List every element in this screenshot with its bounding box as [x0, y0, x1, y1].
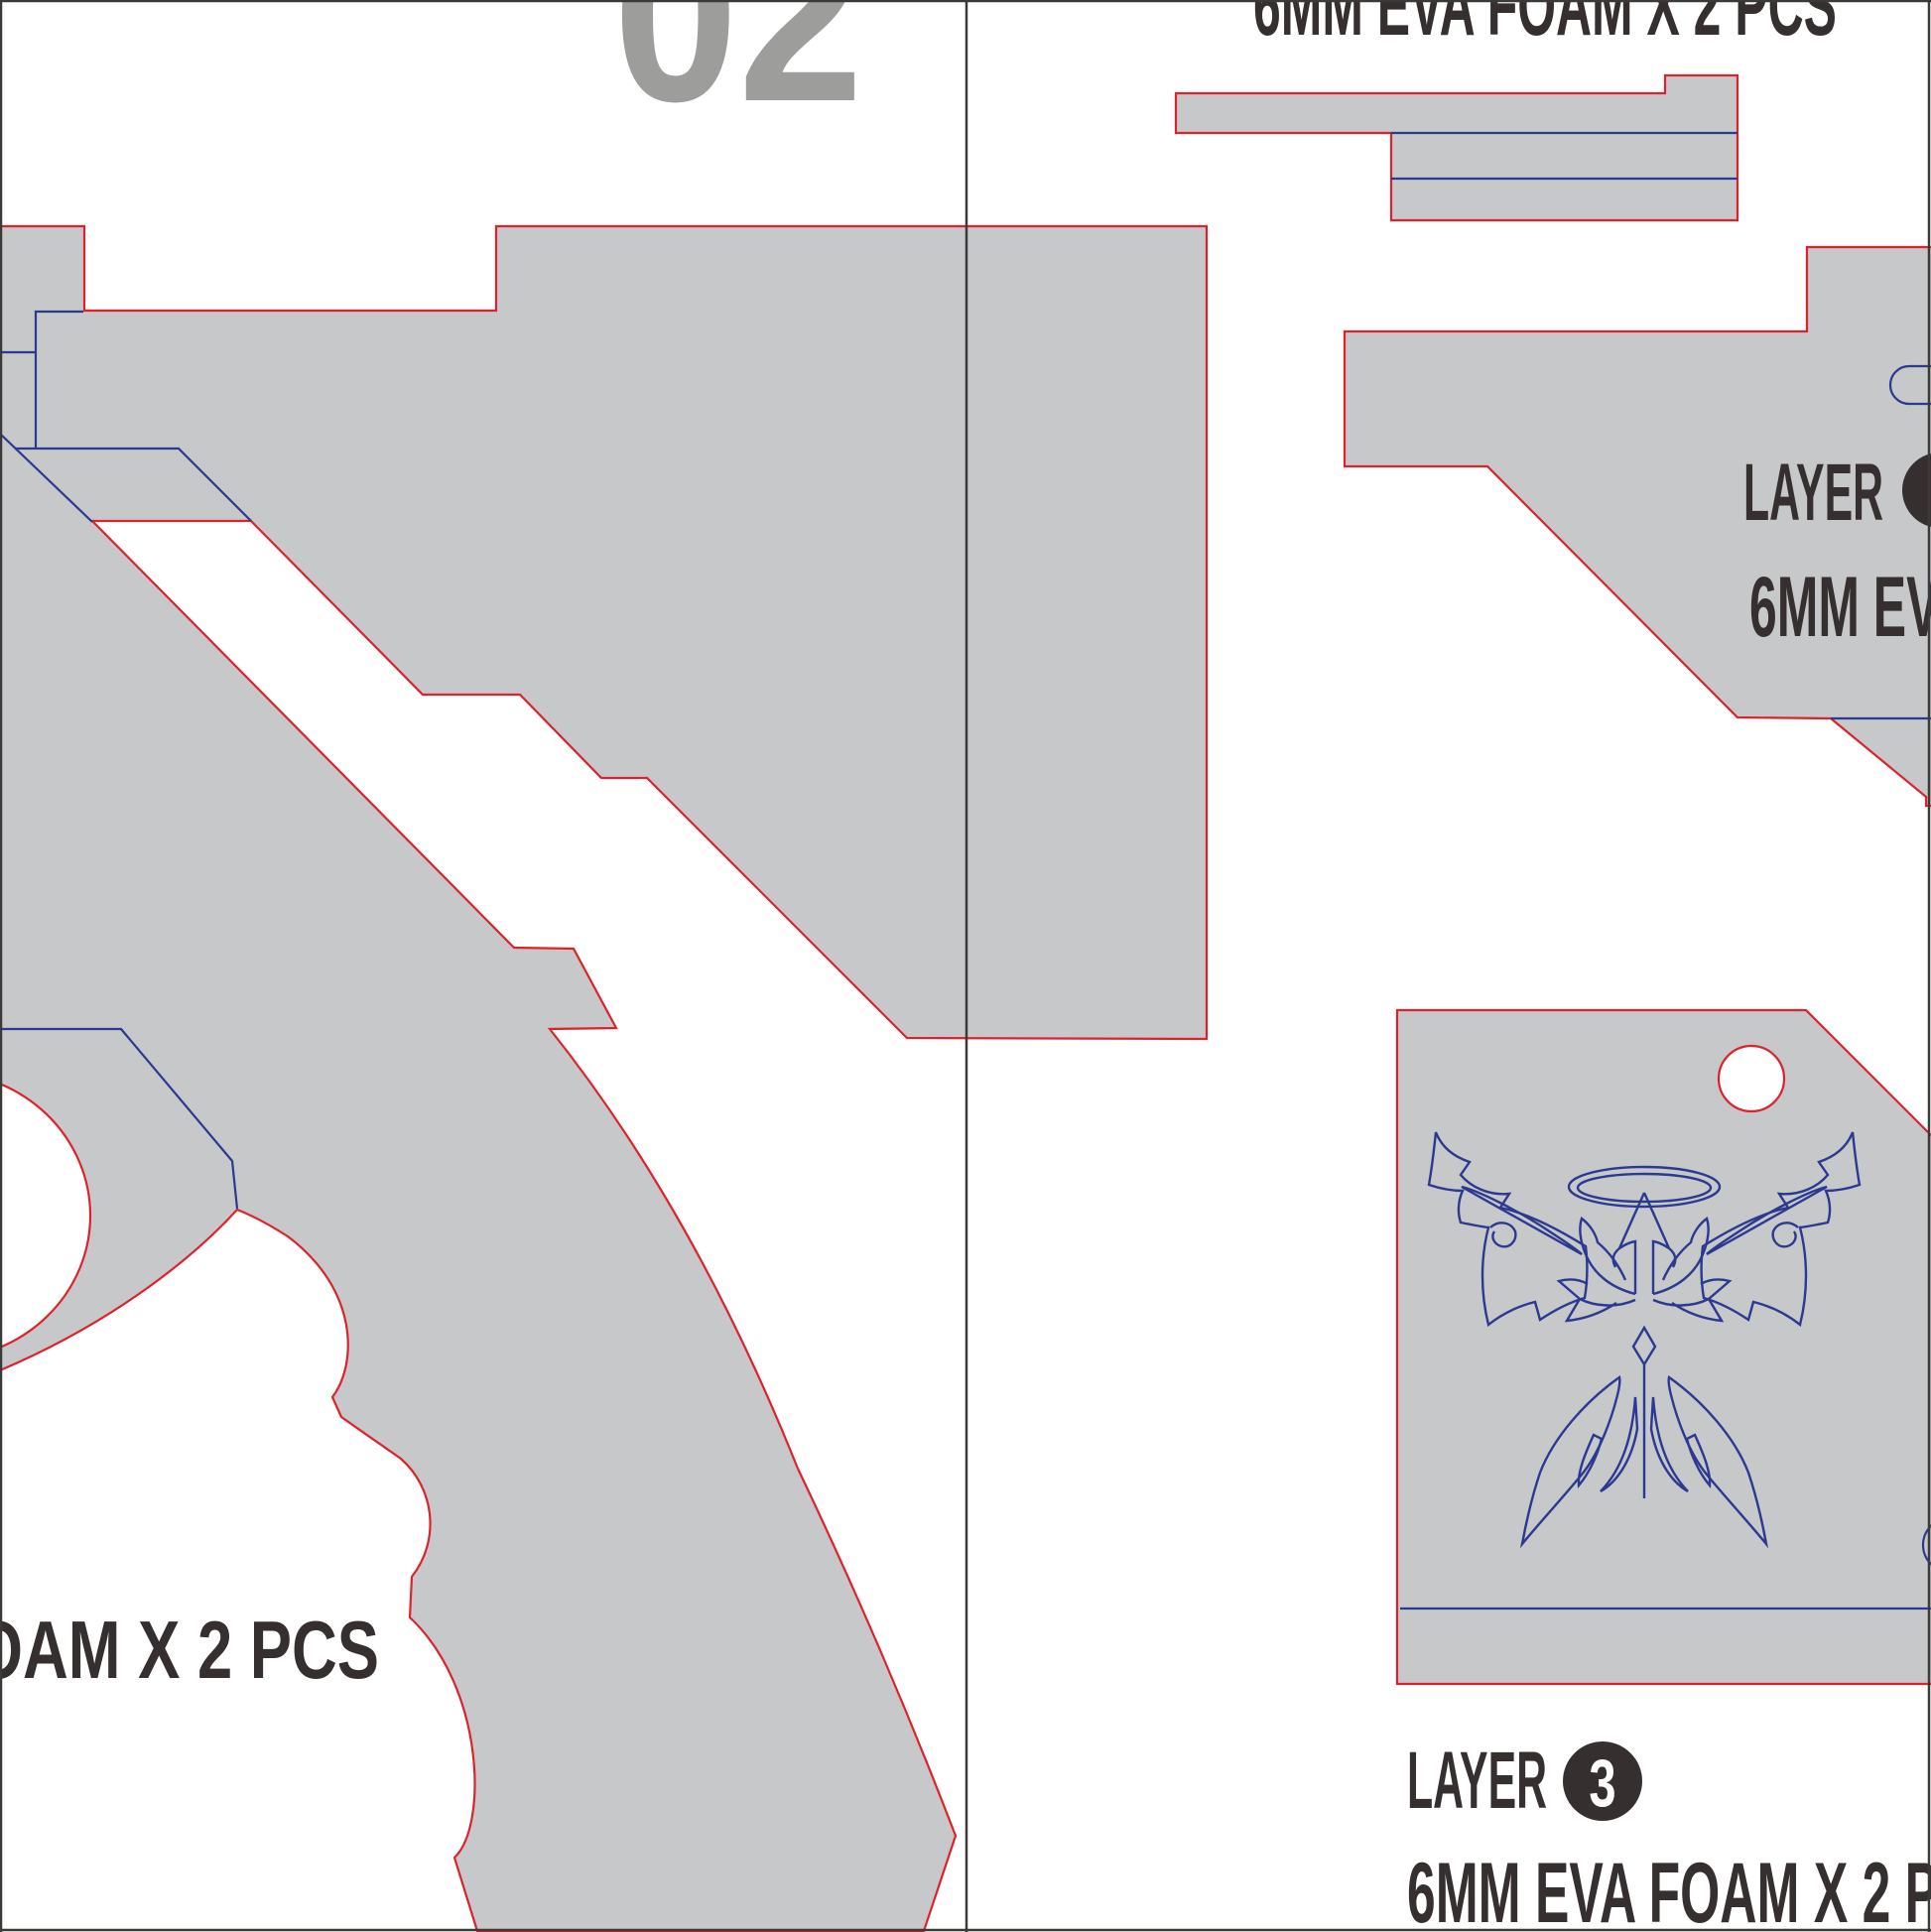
svg-text:LAYER: LAYER: [1743, 447, 1883, 538]
svg-text:02: 02: [613, 0, 863, 153]
svg-text:6MM EVA FOAM X 2 PCS: 6MM EVA FOAM X 2 PCS: [1253, 0, 1837, 53]
svg-text:6MM EVA FOAM X 2 PCS: 6MM EVA FOAM X 2 PCS: [0, 1604, 379, 1696]
svg-text:6MM EVA FOAM X 2 PCS: 6MM EVA FOAM X 2 PCS: [1749, 559, 1931, 655]
svg-text:6MM EVA FOAM X 2 PCS: 6MM EVA FOAM X 2 PCS: [1407, 1847, 1931, 1932]
svg-text:LAYER: LAYER: [1407, 1735, 1547, 1826]
svg-text:3: 3: [1589, 1744, 1615, 1821]
